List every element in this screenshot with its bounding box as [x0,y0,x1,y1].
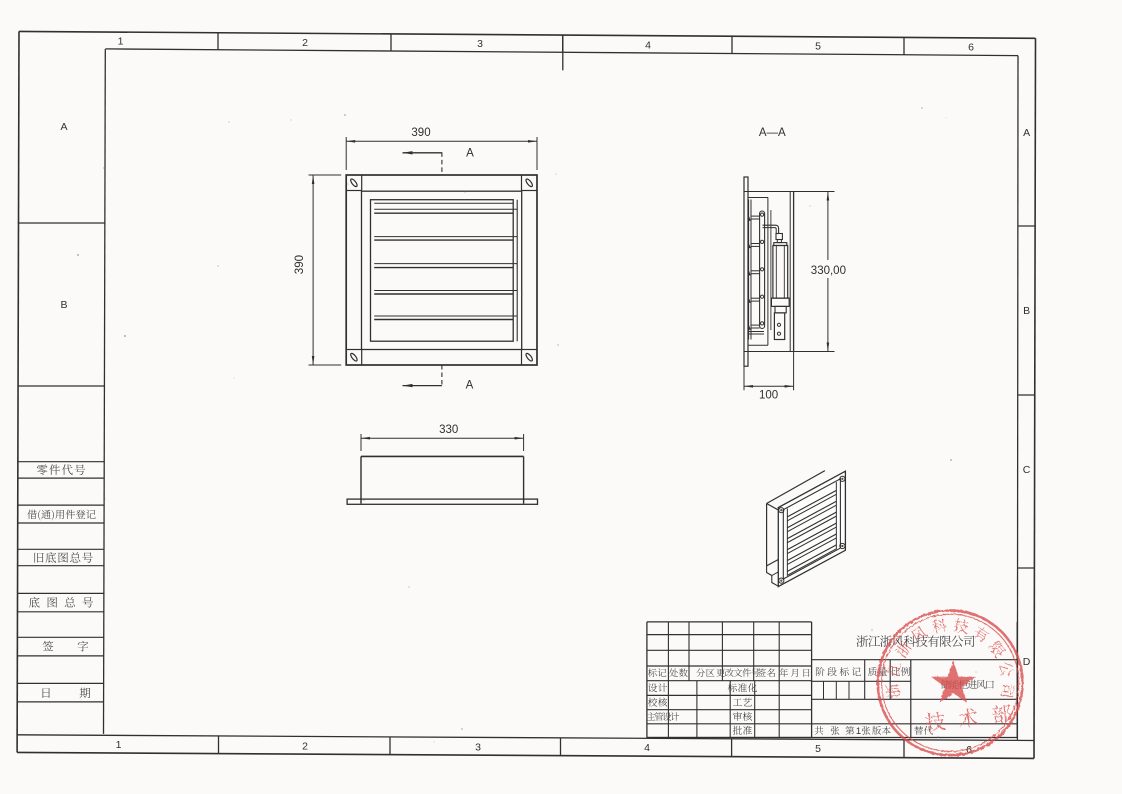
svg-text:100: 100 [759,389,778,401]
svg-text:4: 4 [644,742,650,754]
svg-text:4: 4 [645,39,651,51]
svg-text:330,00: 330,00 [811,265,846,277]
svg-text:330: 330 [439,424,458,436]
svg-text:A: A [466,379,474,391]
svg-text:390: 390 [294,255,306,274]
svg-text:3: 3 [477,38,483,50]
svg-text:5: 5 [815,743,821,755]
svg-text:A—A: A—A [759,127,786,139]
svg-text:C: C [1023,464,1031,476]
svg-text:5: 5 [815,40,821,52]
svg-text:A: A [1023,127,1030,139]
svg-text:B: B [60,299,67,311]
svg-text:1: 1 [116,739,122,751]
svg-text:390: 390 [411,127,430,139]
svg-text:1: 1 [856,726,861,737]
svg-text:A: A [466,147,474,159]
svg-text:3: 3 [475,741,481,753]
svg-text:A: A [60,121,67,133]
svg-text:1: 1 [118,36,124,48]
svg-text:D: D [1023,656,1031,668]
svg-text:2: 2 [302,740,308,752]
svg-text:6: 6 [968,42,974,54]
svg-text:2: 2 [302,37,308,49]
svg-text:B: B [1023,305,1030,317]
